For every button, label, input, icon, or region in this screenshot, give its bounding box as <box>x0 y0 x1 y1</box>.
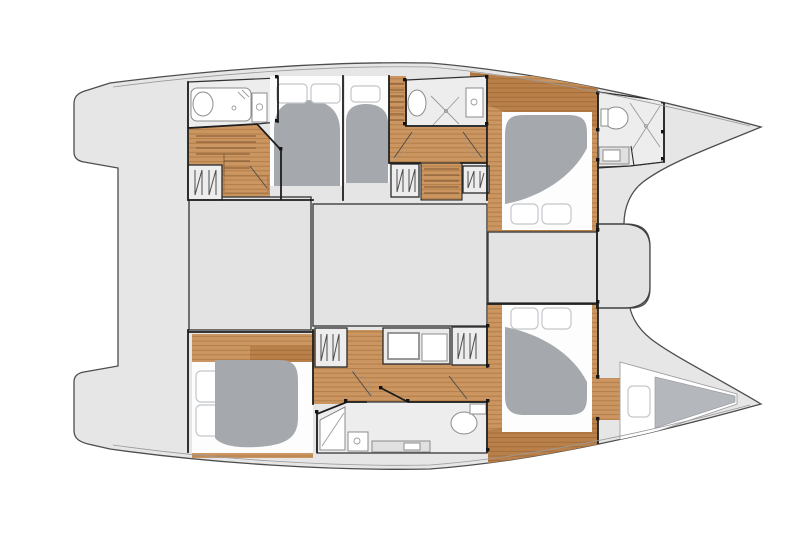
vanity-basin <box>422 334 447 361</box>
bed-duvet <box>346 104 388 183</box>
shower-basin <box>408 90 426 116</box>
toilet-tank <box>470 404 486 414</box>
shower-basin <box>193 92 213 116</box>
stbd-bow-entry-floor <box>598 378 622 420</box>
locker-stbd-aft <box>315 328 347 367</box>
interior <box>188 72 737 468</box>
stbd-mid-head <box>317 402 487 453</box>
port-mid-cabin <box>345 76 389 183</box>
pillow <box>511 308 538 329</box>
sink-cabinet <box>348 432 368 451</box>
vanity-basin <box>404 443 420 450</box>
forward-cockpit-block <box>488 232 597 303</box>
toilet <box>451 412 477 434</box>
toilet-tank <box>601 109 608 126</box>
floor-plan-svg <box>0 0 800 533</box>
sink-basin <box>603 150 620 161</box>
sink-cabinet <box>252 93 267 122</box>
port-aft-head <box>188 78 278 128</box>
vanity-counter <box>372 441 430 452</box>
hull-window <box>311 84 340 103</box>
catamaran-floor-plan <box>0 0 800 533</box>
appliance <box>388 333 419 359</box>
bed-duvet <box>274 100 340 186</box>
pillow <box>628 386 650 417</box>
hull-window <box>351 86 380 102</box>
salon-block-left <box>189 197 311 330</box>
bed-duvet <box>215 360 298 447</box>
pillow <box>542 204 571 224</box>
stbd-vanity-unit <box>383 328 450 364</box>
pillow <box>542 308 571 329</box>
port-mid-head <box>406 76 487 126</box>
locker-port-right <box>463 166 489 193</box>
port-forward-cabin <box>502 112 592 230</box>
stbd-aft-cabin-dark-strip <box>250 346 313 362</box>
forward-beam-block <box>597 224 650 308</box>
pillow <box>511 204 538 224</box>
stbd-aft-cabin <box>192 360 313 453</box>
hull-window <box>277 84 307 103</box>
port-mid-cabin-foot-deck <box>346 183 389 200</box>
stbd-forward-cabin <box>502 304 592 432</box>
locker-port-aft <box>188 165 222 200</box>
sink-cabinet <box>466 88 483 117</box>
salon-block-right <box>313 204 487 326</box>
